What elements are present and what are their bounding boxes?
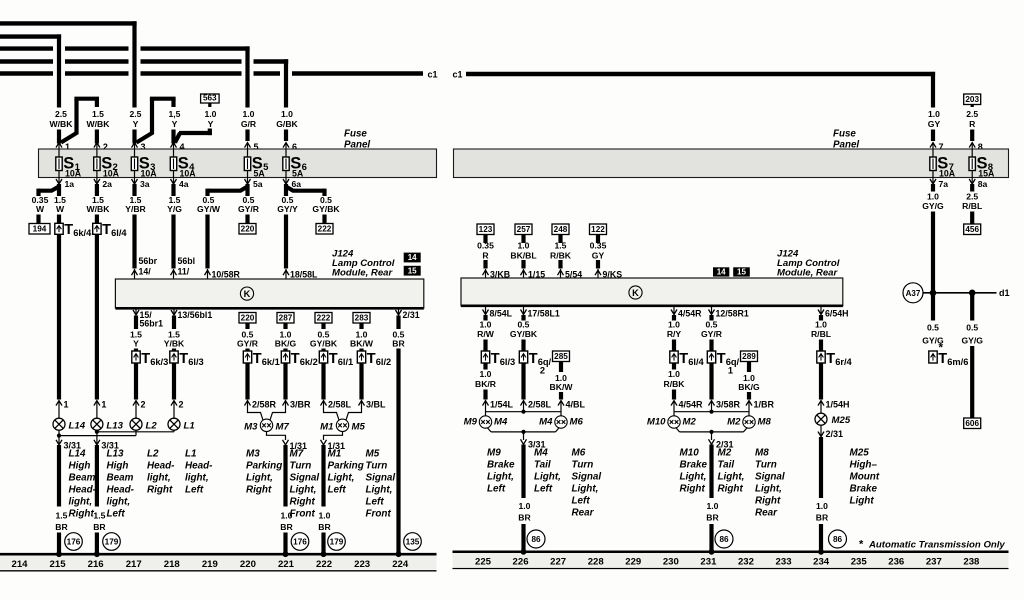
svg-text:R/W: R/W xyxy=(477,329,495,339)
svg-text:GY/BK: GY/BK xyxy=(510,329,538,339)
svg-text:L2: L2 xyxy=(146,420,158,431)
svg-text:179: 179 xyxy=(105,538,119,547)
svg-text:4a: 4a xyxy=(179,179,189,189)
svg-text:GY: GY xyxy=(592,251,605,261)
svg-text:6a: 6a xyxy=(292,179,302,189)
svg-text:W/BK: W/BK xyxy=(87,204,111,214)
svg-text:light,: light, xyxy=(69,497,93,508)
svg-text:Right: Right xyxy=(147,485,173,496)
svg-text:M2: M2 xyxy=(683,417,697,428)
svg-text:220: 220 xyxy=(241,225,255,234)
svg-text:GY/G: GY/G xyxy=(922,201,944,211)
svg-text:Left: Left xyxy=(572,496,591,507)
svg-text:K: K xyxy=(244,289,251,299)
svg-text:6/54H: 6/54H xyxy=(825,309,848,319)
svg-text:Light,: Light, xyxy=(718,472,745,483)
svg-text:GY: GY xyxy=(928,119,941,129)
svg-text:GY/R: GY/R xyxy=(701,329,723,339)
svg-text:3/58R: 3/58R xyxy=(716,400,741,410)
svg-text:Light,: Light, xyxy=(755,484,782,495)
svg-text:Turn: Turn xyxy=(366,461,388,472)
svg-text:15A: 15A xyxy=(978,168,995,178)
svg-text:Automatic Transmission Only: Automatic Transmission Only xyxy=(868,540,1005,551)
svg-text:Beam: Beam xyxy=(107,473,134,484)
svg-text:Light,: Light, xyxy=(534,472,561,483)
svg-text:Module, Rear: Module, Rear xyxy=(777,268,839,279)
svg-text:14: 14 xyxy=(717,267,726,276)
svg-text:High: High xyxy=(107,461,129,472)
svg-text:231: 231 xyxy=(700,556,717,567)
svg-text:Brake: Brake xyxy=(487,460,515,471)
svg-text:T: T xyxy=(938,351,947,367)
svg-text:226: 226 xyxy=(513,556,529,567)
svg-text:1.5: 1.5 xyxy=(92,109,104,119)
svg-text:Right: Right xyxy=(755,496,781,507)
svg-text:237: 237 xyxy=(926,556,942,567)
svg-text:230: 230 xyxy=(663,556,679,567)
svg-text:M8: M8 xyxy=(755,448,769,459)
svg-text:1a: 1a xyxy=(65,179,75,189)
svg-text:Head-: Head- xyxy=(185,461,212,472)
svg-text:T: T xyxy=(717,351,726,367)
svg-text:2.5: 2.5 xyxy=(55,109,67,119)
svg-text:2.5: 2.5 xyxy=(966,192,978,202)
svg-text:2.5: 2.5 xyxy=(966,109,978,119)
svg-text:BR: BR xyxy=(518,513,531,523)
svg-text:T: T xyxy=(367,351,376,367)
svg-text:d1: d1 xyxy=(999,288,1010,298)
svg-text:M3: M3 xyxy=(246,449,260,460)
svg-text:Fuse: Fuse xyxy=(833,129,856,140)
svg-text:14/: 14/ xyxy=(139,267,152,277)
svg-text:86: 86 xyxy=(531,535,541,544)
svg-text:13/56bl1: 13/56bl1 xyxy=(178,310,213,320)
svg-text:Left: Left xyxy=(487,484,506,495)
svg-text:R/BK: R/BK xyxy=(663,379,685,389)
svg-text:R/Y: R/Y xyxy=(667,329,682,339)
svg-text:Light,: Light, xyxy=(246,473,273,484)
svg-text:1.0: 1.0 xyxy=(816,501,828,511)
svg-text:Brake: Brake xyxy=(680,460,708,471)
svg-text:11/: 11/ xyxy=(178,267,190,277)
svg-text:T: T xyxy=(679,351,688,367)
svg-text:M2: M2 xyxy=(727,417,741,428)
svg-text:light,: light, xyxy=(107,497,131,508)
svg-text:Brake: Brake xyxy=(850,484,878,495)
svg-text:T: T xyxy=(64,222,73,238)
svg-text:BK/W: BK/W xyxy=(350,339,374,349)
svg-text:1.0: 1.0 xyxy=(519,501,531,511)
svg-text:0.35: 0.35 xyxy=(477,241,494,251)
svg-text:217: 217 xyxy=(126,559,142,570)
svg-text:Head-: Head- xyxy=(69,485,96,496)
svg-text:BR: BR xyxy=(93,522,106,532)
svg-text:High–: High– xyxy=(850,460,878,471)
svg-text:Module, Rear: Module, Rear xyxy=(332,268,394,279)
svg-text:227: 227 xyxy=(550,556,566,567)
svg-text:14: 14 xyxy=(408,253,417,262)
svg-text:1,5: 1,5 xyxy=(169,109,181,119)
svg-text:6k/3: 6k/3 xyxy=(150,357,168,367)
svg-text:BR: BR xyxy=(816,513,829,523)
svg-text:15: 15 xyxy=(408,266,417,275)
svg-text:2: 2 xyxy=(179,400,184,410)
svg-text:86: 86 xyxy=(719,535,729,544)
svg-text:12/58R1: 12/58R1 xyxy=(716,309,749,319)
svg-text:Light,: Light, xyxy=(680,472,707,483)
svg-text:W/BK: W/BK xyxy=(87,119,111,129)
svg-text:M5: M5 xyxy=(352,421,366,432)
svg-text:0.35: 0.35 xyxy=(590,241,607,251)
svg-text:123: 123 xyxy=(479,225,493,234)
svg-text:T: T xyxy=(253,351,262,367)
svg-text:218: 218 xyxy=(164,559,181,570)
svg-text:86: 86 xyxy=(833,535,843,544)
svg-text:BR: BR xyxy=(55,522,68,532)
svg-text:Head-: Head- xyxy=(147,461,174,472)
svg-text:224: 224 xyxy=(392,559,409,570)
svg-text:283: 283 xyxy=(355,314,369,323)
svg-text:18/58L: 18/58L xyxy=(290,270,318,280)
svg-text:M25: M25 xyxy=(850,448,870,459)
svg-text:T: T xyxy=(826,351,835,367)
svg-text:T: T xyxy=(529,351,538,367)
svg-text:6l/4: 6l/4 xyxy=(688,357,704,367)
svg-text:L1: L1 xyxy=(184,420,195,431)
svg-text:234: 234 xyxy=(813,556,830,567)
svg-text:Y: Y xyxy=(133,339,139,349)
svg-text:G/R: G/R xyxy=(241,119,257,129)
svg-text:225: 225 xyxy=(475,556,492,567)
svg-text:Left: Left xyxy=(107,509,126,520)
svg-text:6k/1: 6k/1 xyxy=(262,357,280,367)
svg-text:1.0: 1.0 xyxy=(480,320,492,330)
svg-text:6r/4: 6r/4 xyxy=(835,357,852,367)
svg-text:M6: M6 xyxy=(570,417,584,428)
svg-text:M1: M1 xyxy=(320,421,333,432)
svg-text:R/BL: R/BL xyxy=(962,201,982,211)
svg-text:GY/Y: GY/Y xyxy=(277,204,298,214)
svg-text:GY/W: GY/W xyxy=(197,204,221,214)
svg-text:M5: M5 xyxy=(366,449,380,460)
svg-text:GY/BK: GY/BK xyxy=(312,204,340,214)
svg-text:1.0: 1.0 xyxy=(518,241,530,251)
svg-text:R/BK: R/BK xyxy=(550,251,572,261)
svg-text:1.0: 1.0 xyxy=(928,109,940,119)
svg-text:Head-: Head- xyxy=(107,485,134,496)
svg-text:Rear: Rear xyxy=(572,508,595,519)
svg-text:Right: Right xyxy=(290,497,316,508)
svg-text:Left: Left xyxy=(328,485,347,496)
svg-text:BR: BR xyxy=(280,522,293,532)
svg-text:Front: Front xyxy=(290,509,316,520)
svg-text:220: 220 xyxy=(241,314,255,323)
svg-text:8a: 8a xyxy=(978,179,988,189)
svg-text:236: 236 xyxy=(888,556,904,567)
svg-text:56bl: 56bl xyxy=(178,256,196,266)
svg-text:BR: BR xyxy=(706,513,719,523)
svg-text:257: 257 xyxy=(517,225,531,234)
svg-text:233: 233 xyxy=(776,556,792,567)
svg-text:1.0: 1.0 xyxy=(480,369,492,379)
svg-text:Right: Right xyxy=(680,484,706,495)
svg-text:10A: 10A xyxy=(939,168,956,178)
svg-text:BK/BL: BK/BL xyxy=(510,251,536,261)
svg-text:G/BK: G/BK xyxy=(276,119,298,129)
svg-text:W: W xyxy=(56,204,65,214)
svg-text:light,: light, xyxy=(147,473,171,484)
svg-text:238: 238 xyxy=(963,556,980,567)
svg-text:1.0: 1.0 xyxy=(668,369,680,379)
svg-text:194: 194 xyxy=(33,225,47,234)
svg-text:2: 2 xyxy=(540,366,545,376)
svg-text:1.0: 1.0 xyxy=(281,109,293,119)
svg-text:GY/BK: GY/BK xyxy=(310,339,338,349)
svg-text:Fuse: Fuse xyxy=(344,129,367,140)
svg-text:1.5: 1.5 xyxy=(56,511,68,521)
svg-text:M3: M3 xyxy=(244,421,258,432)
svg-text:T: T xyxy=(102,222,111,238)
svg-text:4/54R: 4/54R xyxy=(679,400,704,410)
svg-text:0.5: 0.5 xyxy=(518,320,530,330)
svg-text:176: 176 xyxy=(67,538,81,547)
svg-text:216: 216 xyxy=(88,559,104,570)
svg-text:T: T xyxy=(179,351,188,367)
svg-text:563: 563 xyxy=(203,94,217,103)
svg-text:R: R xyxy=(482,251,489,261)
svg-text:L14: L14 xyxy=(69,420,86,431)
svg-text:M8: M8 xyxy=(758,417,772,428)
svg-text:203: 203 xyxy=(965,95,979,104)
svg-text:5a: 5a xyxy=(253,179,263,189)
svg-text:Parking: Parking xyxy=(246,461,282,472)
svg-text:Left: Left xyxy=(534,484,553,495)
svg-text:6l/4: 6l/4 xyxy=(111,228,127,238)
svg-text:2.5: 2.5 xyxy=(130,109,142,119)
svg-text:BK/G: BK/G xyxy=(738,382,760,392)
svg-text:c1: c1 xyxy=(453,70,463,80)
svg-text:GY/G: GY/G xyxy=(961,336,983,346)
svg-text:M4: M4 xyxy=(494,417,508,428)
svg-text:W: W xyxy=(36,204,45,214)
svg-text:L13: L13 xyxy=(106,420,123,431)
svg-text:1: 1 xyxy=(101,400,106,410)
svg-text:M7: M7 xyxy=(276,421,290,432)
svg-text:L2: L2 xyxy=(147,449,159,460)
svg-text:Signal: Signal xyxy=(755,472,785,483)
svg-text:M10: M10 xyxy=(680,448,700,459)
svg-text:Right: Right xyxy=(246,485,272,496)
svg-text:6l/2: 6l/2 xyxy=(376,357,392,367)
svg-text:L14: L14 xyxy=(69,449,87,460)
svg-text:4/BL: 4/BL xyxy=(566,400,586,410)
svg-text:M9: M9 xyxy=(487,448,501,459)
svg-text:6l/1: 6l/1 xyxy=(338,357,354,367)
svg-text:6k/4: 6k/4 xyxy=(73,228,92,238)
svg-text:M7: M7 xyxy=(290,449,304,460)
svg-text:M10: M10 xyxy=(647,417,666,428)
svg-text:Tail: Tail xyxy=(718,460,735,471)
svg-text:2/31: 2/31 xyxy=(403,310,420,320)
svg-text:176: 176 xyxy=(293,538,307,547)
svg-text:light,: light, xyxy=(185,473,209,484)
svg-text:1.0: 1.0 xyxy=(927,192,939,202)
svg-text:Turn: Turn xyxy=(572,460,594,471)
svg-text:215: 215 xyxy=(50,559,67,570)
svg-text:248: 248 xyxy=(554,225,568,234)
svg-text:1.0: 1.0 xyxy=(668,320,680,330)
svg-text:6l/3: 6l/3 xyxy=(500,357,516,367)
svg-text:R/BL: R/BL xyxy=(811,329,831,339)
svg-text:3a: 3a xyxy=(140,179,150,189)
svg-text:Y: Y xyxy=(208,119,214,129)
svg-text:606: 606 xyxy=(965,419,979,428)
svg-text:1.0: 1.0 xyxy=(205,109,217,119)
svg-text:1.0: 1.0 xyxy=(243,109,255,119)
svg-text:M6: M6 xyxy=(572,448,586,459)
svg-text:Tail: Tail xyxy=(534,460,551,471)
svg-text:Parking: Parking xyxy=(328,461,364,472)
svg-text:2a: 2a xyxy=(102,179,112,189)
svg-text:219: 219 xyxy=(202,559,218,570)
svg-text:L13: L13 xyxy=(107,449,125,460)
svg-text:287: 287 xyxy=(279,314,293,323)
svg-text:M1: M1 xyxy=(328,449,342,460)
svg-text:Light,: Light, xyxy=(572,484,599,495)
svg-text:0.5: 0.5 xyxy=(706,320,718,330)
svg-text:7a: 7a xyxy=(939,179,949,189)
svg-text:179: 179 xyxy=(330,538,344,547)
svg-text:GY/R: GY/R xyxy=(237,339,259,349)
svg-text:235: 235 xyxy=(851,556,868,567)
svg-text:M25: M25 xyxy=(832,415,851,426)
svg-text:2/58R: 2/58R xyxy=(252,400,277,410)
svg-text:17/58L1: 17/58L1 xyxy=(528,309,560,319)
svg-text:2/31: 2/31 xyxy=(826,429,844,439)
svg-text:High: High xyxy=(69,461,91,472)
svg-text:1.0: 1.0 xyxy=(815,320,827,330)
svg-text:229: 229 xyxy=(625,556,641,567)
svg-text:Signal: Signal xyxy=(366,473,396,484)
svg-text:5A: 5A xyxy=(292,168,304,178)
svg-text:BK/G: BK/G xyxy=(275,339,297,349)
svg-text:Y: Y xyxy=(133,119,139,129)
svg-text:T: T xyxy=(291,351,300,367)
svg-text:L1: L1 xyxy=(185,449,197,460)
svg-text:289: 289 xyxy=(742,352,756,361)
svg-text:1.0: 1.0 xyxy=(707,501,719,511)
svg-text:222: 222 xyxy=(318,225,332,234)
svg-text:222: 222 xyxy=(317,314,331,323)
svg-text:10/58R: 10/58R xyxy=(212,270,241,280)
svg-text:Light,: Light, xyxy=(487,472,514,483)
svg-text:T: T xyxy=(329,351,338,367)
svg-text:K: K xyxy=(632,288,639,298)
svg-text:Turn: Turn xyxy=(290,461,312,472)
svg-text:*: * xyxy=(859,539,864,551)
svg-text:10A: 10A xyxy=(141,168,158,178)
svg-text:T: T xyxy=(141,351,150,367)
svg-text:M2: M2 xyxy=(718,448,732,459)
svg-text:Y/BK: Y/BK xyxy=(164,339,185,349)
svg-text:3/BL: 3/BL xyxy=(366,400,386,410)
svg-text:4/54R: 4/54R xyxy=(678,309,702,319)
svg-text:220: 220 xyxy=(240,559,256,570)
svg-text:15: 15 xyxy=(737,267,746,276)
svg-text:1/BR: 1/BR xyxy=(754,400,775,410)
svg-text:214: 214 xyxy=(11,559,28,570)
svg-text:1.0: 1.0 xyxy=(319,511,331,521)
svg-text:A37: A37 xyxy=(906,289,921,298)
svg-text:Signal: Signal xyxy=(290,473,320,484)
svg-text:BR: BR xyxy=(392,339,405,349)
svg-text:135: 135 xyxy=(406,538,420,547)
svg-text:6m/6: 6m/6 xyxy=(947,357,968,367)
svg-text:Left: Left xyxy=(185,485,204,496)
svg-text:Signal: Signal xyxy=(572,472,602,483)
svg-text:10A: 10A xyxy=(65,168,82,178)
svg-text:BK/R: BK/R xyxy=(475,379,497,389)
svg-text:Light,: Light, xyxy=(366,485,393,496)
svg-text:228: 228 xyxy=(588,556,605,567)
svg-text:Front: Front xyxy=(366,509,392,520)
svg-text:222: 222 xyxy=(316,559,332,570)
svg-text:1.5: 1.5 xyxy=(555,241,567,251)
svg-text:M4: M4 xyxy=(534,448,548,459)
svg-text:Y/BR: Y/BR xyxy=(125,204,146,214)
svg-text:232: 232 xyxy=(738,556,754,567)
svg-text:3/BR: 3/BR xyxy=(290,400,311,410)
svg-text:Light: Light xyxy=(850,496,875,507)
svg-text:0.5: 0.5 xyxy=(927,323,939,333)
svg-text:Light,: Light, xyxy=(290,485,317,496)
svg-text:M4: M4 xyxy=(539,417,553,428)
svg-text:122: 122 xyxy=(591,225,605,234)
svg-text:Turn: Turn xyxy=(755,460,777,471)
svg-text:W/BK: W/BK xyxy=(50,119,74,129)
svg-text:Light,: Light, xyxy=(328,473,355,484)
svg-text:223: 223 xyxy=(354,559,370,570)
svg-text:BR: BR xyxy=(318,522,331,532)
svg-text:Beam: Beam xyxy=(69,473,96,484)
svg-text:1.5: 1.5 xyxy=(93,511,105,521)
svg-text:Right: Right xyxy=(718,484,744,495)
svg-text:2: 2 xyxy=(141,400,146,410)
svg-text:1: 1 xyxy=(728,366,733,376)
svg-text:Rear: Rear xyxy=(755,508,778,519)
svg-text:Right: Right xyxy=(69,509,95,520)
svg-text:0.5: 0.5 xyxy=(966,323,978,333)
svg-text:Mount: Mount xyxy=(850,472,880,483)
svg-text:Left: Left xyxy=(366,497,385,508)
svg-text:8/54L: 8/54L xyxy=(490,309,513,319)
svg-text:Y/G: Y/G xyxy=(167,204,182,214)
svg-text:1: 1 xyxy=(64,400,69,410)
svg-text:56br1: 56br1 xyxy=(140,319,164,329)
svg-text:1/54L: 1/54L xyxy=(490,400,514,410)
svg-text:6k/2: 6k/2 xyxy=(300,357,318,367)
svg-text:10A: 10A xyxy=(103,168,120,178)
svg-text:c1: c1 xyxy=(428,70,438,80)
svg-text:10A: 10A xyxy=(180,168,197,178)
svg-text:BK/W: BK/W xyxy=(550,382,574,392)
svg-text:GY/R: GY/R xyxy=(238,204,260,214)
svg-text:2/58L: 2/58L xyxy=(328,400,352,410)
svg-text:T: T xyxy=(491,351,500,367)
svg-text:1/54H: 1/54H xyxy=(826,400,850,410)
svg-text:6l/3: 6l/3 xyxy=(188,357,204,367)
svg-text:R: R xyxy=(969,119,976,129)
